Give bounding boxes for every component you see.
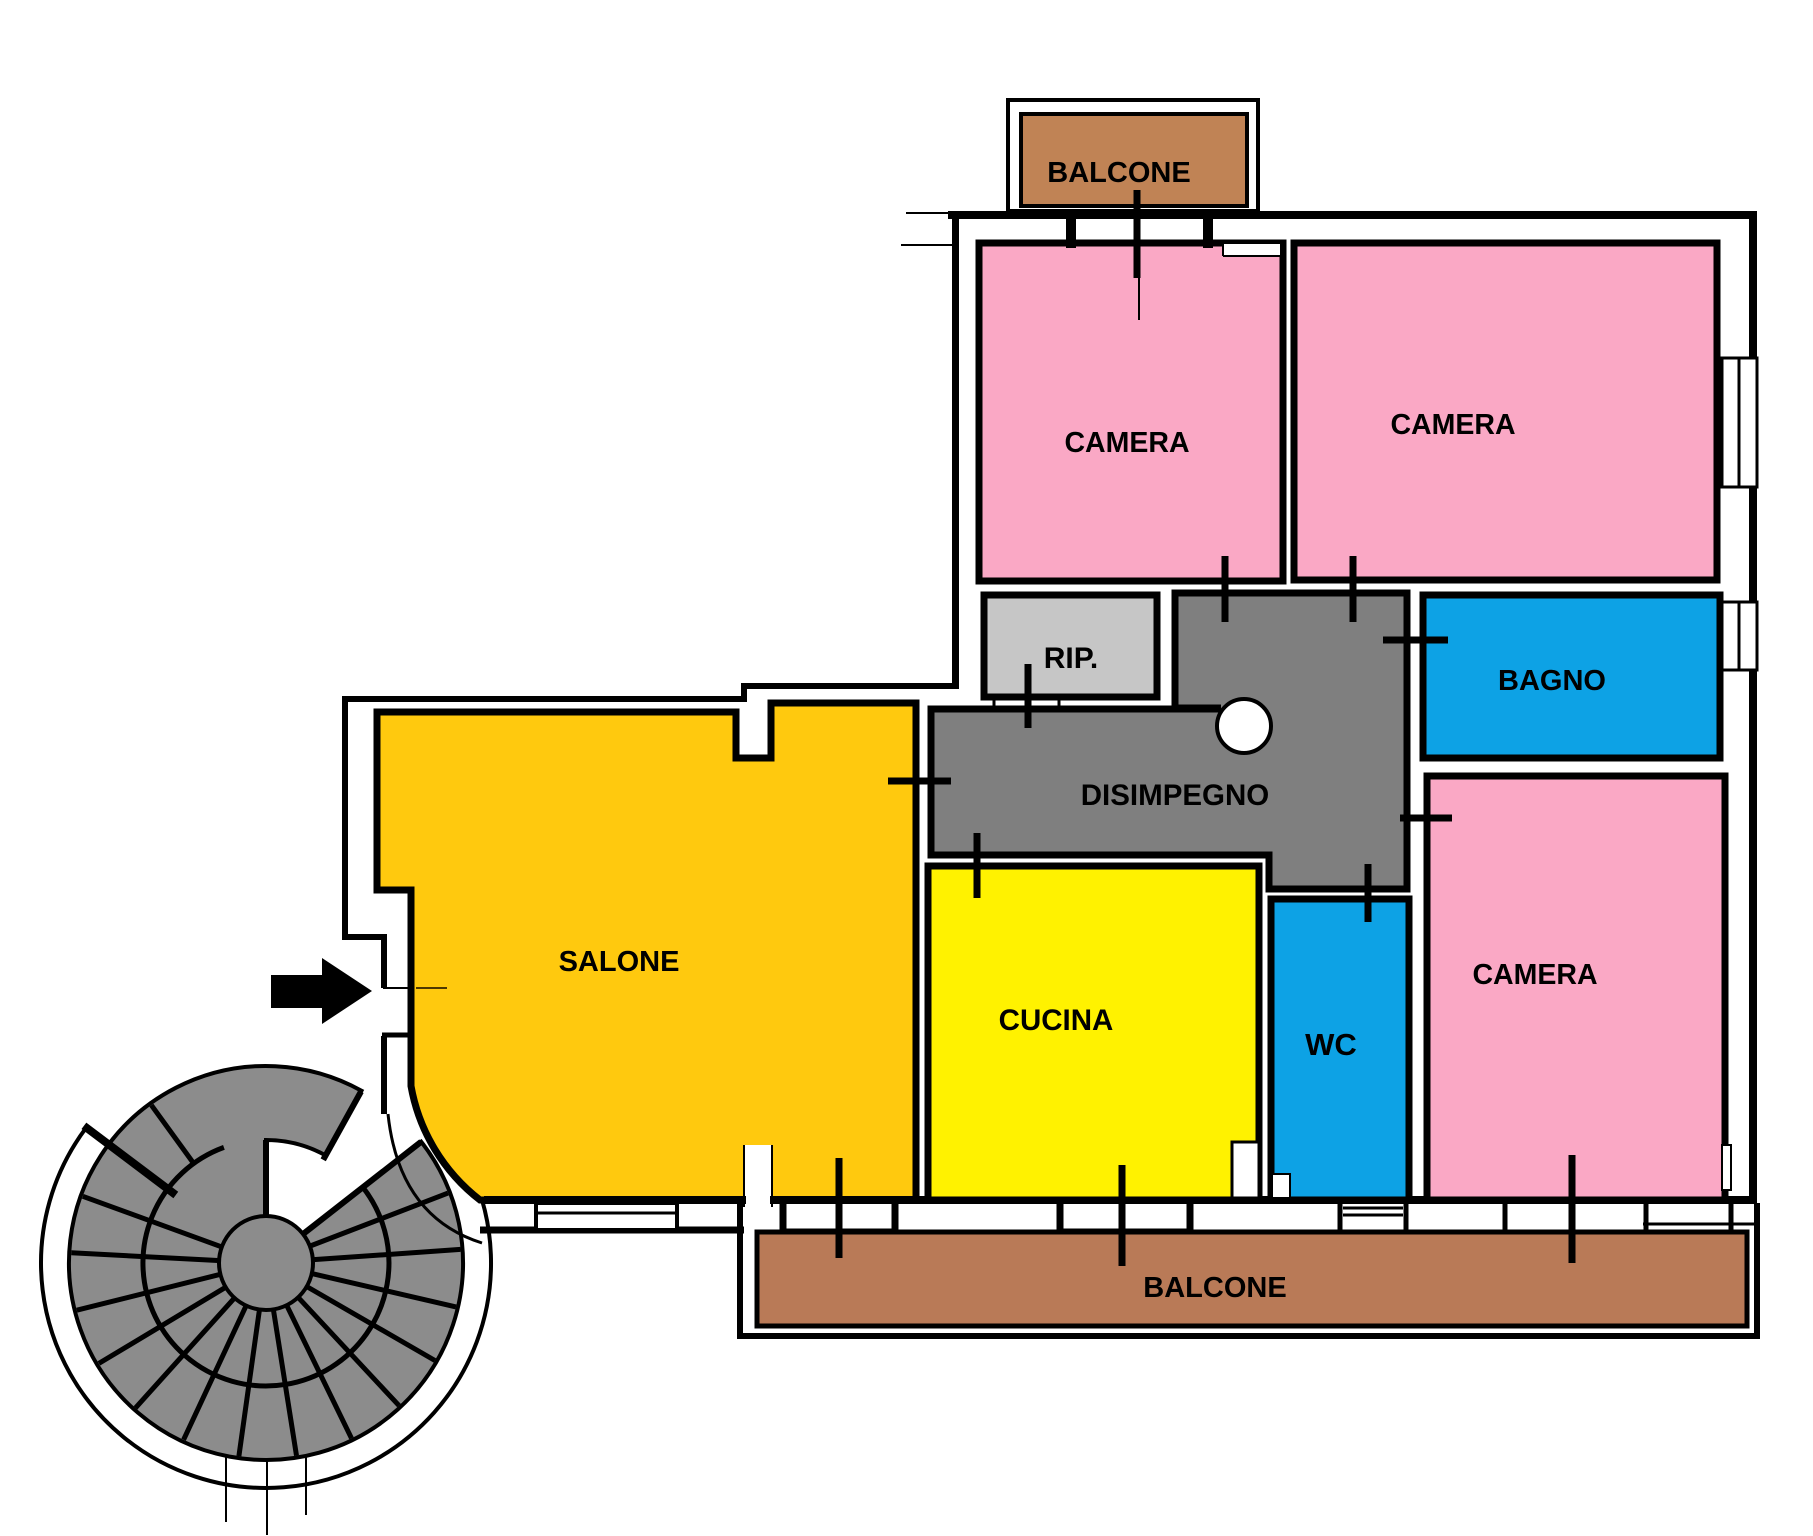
svg-text:CAMERA: CAMERA	[1064, 427, 1189, 459]
svg-text:WC: WC	[1305, 1027, 1357, 1062]
svg-text:BALCONE: BALCONE	[1047, 157, 1190, 189]
svg-text:DISIMPEGNO: DISIMPEGNO	[1081, 779, 1270, 812]
svg-text:SALONE: SALONE	[559, 946, 680, 978]
svg-text:CUCINA: CUCINA	[999, 1004, 1114, 1037]
svg-text:BAGNO: BAGNO	[1498, 665, 1606, 697]
svg-text:BALCONE: BALCONE	[1143, 1272, 1286, 1304]
svg-text:CAMERA: CAMERA	[1390, 409, 1515, 441]
svg-text:CAMERA: CAMERA	[1472, 959, 1597, 991]
svg-text:RIP.: RIP.	[1044, 642, 1098, 675]
